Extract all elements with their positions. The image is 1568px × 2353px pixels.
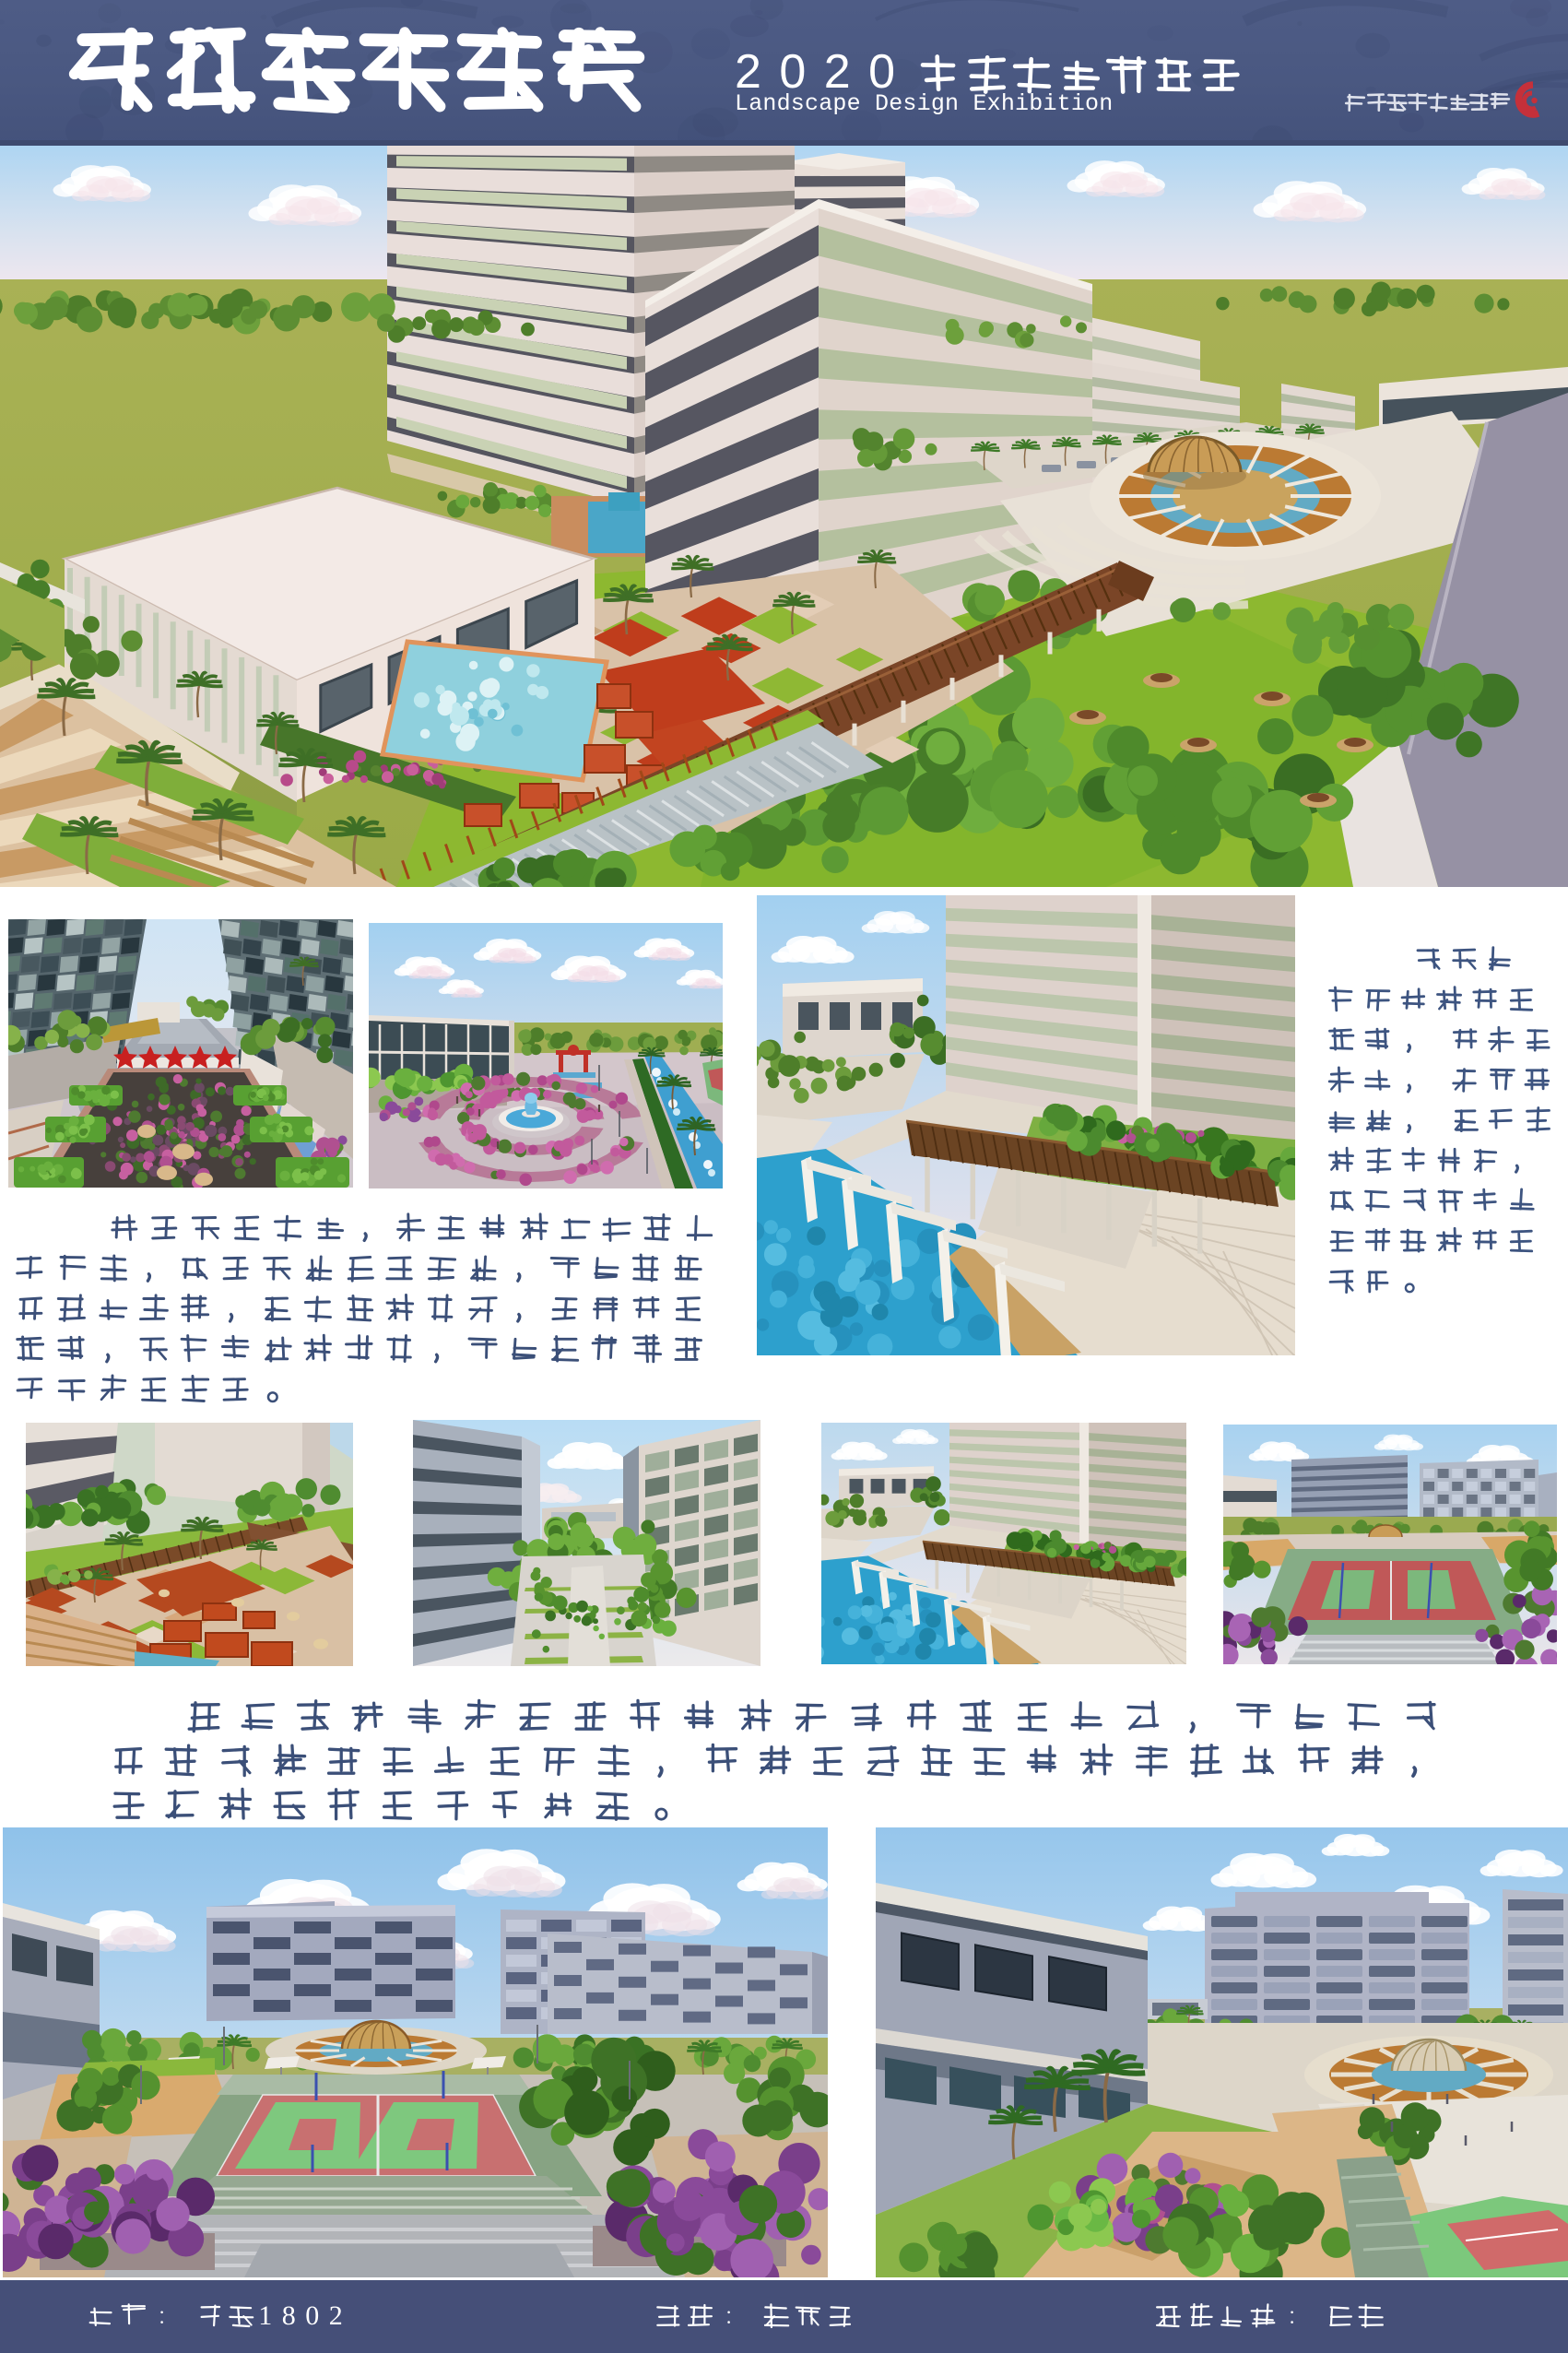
- svg-text:1: 1: [258, 2300, 272, 2331]
- svg-text:Landscape Design Exhibition: Landscape Design Exhibition: [735, 90, 1113, 117]
- svg-text:0: 0: [305, 2300, 319, 2331]
- svg-text:8: 8: [282, 2300, 296, 2331]
- svg-text:2: 2: [329, 2300, 343, 2331]
